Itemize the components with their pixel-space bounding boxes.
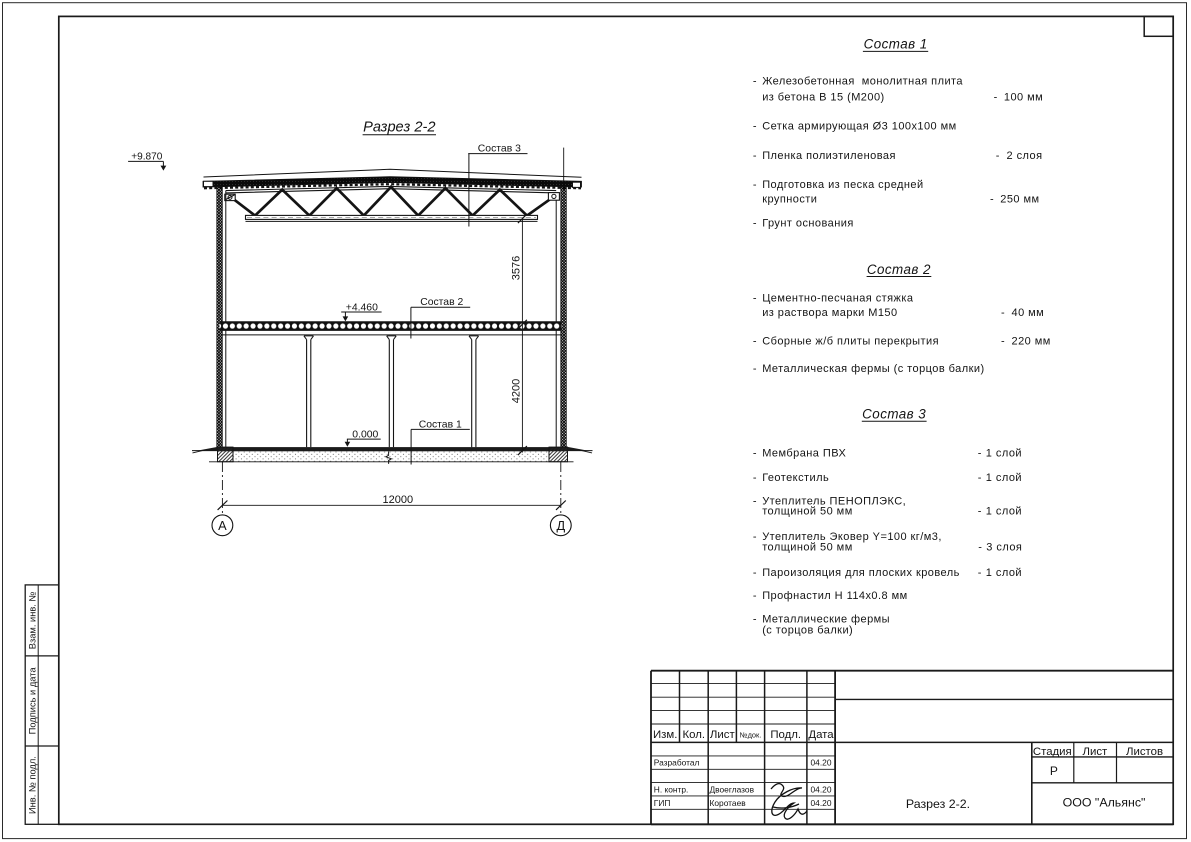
svg-text:Н. контр.: Н. контр. bbox=[654, 784, 689, 794]
svg-text:крупности: крупности bbox=[762, 193, 817, 205]
svg-text:- Пароизоляция для плоских кро: - Пароизоляция для плоских кровель bbox=[753, 567, 960, 579]
svg-text:А: А bbox=[218, 518, 227, 533]
svg-text:Лист: Лист bbox=[710, 729, 736, 741]
svg-text:ГИП: ГИП bbox=[654, 798, 671, 808]
svg-text:- 100 мм: - 100 мм bbox=[994, 91, 1044, 103]
svg-text:(с торцов балки): (с торцов балки) bbox=[762, 625, 853, 637]
svg-text:Подпись и дата: Подпись и дата bbox=[27, 667, 37, 735]
svg-text:№док.: №док. bbox=[740, 731, 762, 740]
svg-text:- 40 мм: - 40 мм bbox=[1001, 307, 1044, 319]
svg-text:Разрез 2-2: Разрез 2-2 bbox=[363, 120, 435, 136]
svg-text:из бетона В 15 (М200): из бетона В 15 (М200) bbox=[762, 91, 884, 103]
svg-text:Взам. инв. №: Взам. инв. № bbox=[27, 592, 37, 650]
svg-text:- Геотекстиль: - Геотекстиль bbox=[753, 472, 829, 484]
svg-text:- Металлические фермы: - Металлические фермы bbox=[753, 613, 890, 625]
svg-text:+9.870: +9.870 bbox=[131, 151, 163, 162]
svg-text:- 1 слой: - 1 слой bbox=[978, 505, 1022, 517]
svg-text:- 1 слой: - 1 слой bbox=[978, 567, 1022, 579]
svg-text:- 250 мм: - 250 мм bbox=[990, 193, 1040, 205]
svg-text:Коротаев: Коротаев bbox=[710, 798, 747, 808]
svg-text:толщиной 50 мм: толщиной 50 мм bbox=[762, 541, 853, 553]
svg-text:Листов: Листов bbox=[1126, 746, 1163, 758]
svg-text:Дата: Дата bbox=[808, 729, 834, 741]
svg-text:Состав 2: Состав 2 bbox=[867, 262, 931, 277]
svg-text:Изм.: Изм. bbox=[653, 729, 677, 741]
svg-text:Р: Р bbox=[1050, 764, 1058, 778]
svg-text:Лист: Лист bbox=[1083, 746, 1109, 758]
svg-text:- Пленка полиэтиленовая: - Пленка полиэтиленовая bbox=[753, 150, 896, 162]
svg-text:- 1 слой: - 1 слой bbox=[978, 448, 1022, 460]
svg-text:Стадия: Стадия bbox=[1033, 746, 1072, 758]
svg-text:- 2 слоя: - 2 слоя bbox=[996, 150, 1043, 162]
svg-text:- Железобетонная монолитная п: - Железобетонная монолитная плита bbox=[753, 76, 964, 88]
svg-text:Кол.: Кол. bbox=[683, 729, 706, 741]
svg-text:Состав 2: Состав 2 bbox=[420, 297, 463, 308]
svg-text:толщиной 50 мм: толщиной 50 мм bbox=[762, 505, 853, 517]
svg-text:- Сборные ж/б плиты перекрытия: - Сборные ж/б плиты перекрытия bbox=[753, 335, 939, 347]
svg-text:Двоеглазов: Двоеглазов bbox=[710, 784, 755, 794]
svg-text:из раствора марки М150: из раствора марки М150 bbox=[762, 307, 897, 319]
svg-text:04.20: 04.20 bbox=[811, 757, 832, 767]
svg-text:- Металлическая фермы (с торцо: - Металлическая фермы (с торцов балки) bbox=[753, 363, 985, 375]
svg-text:Подл.: Подл. bbox=[770, 729, 801, 741]
svg-text:- Подготовка из песка средней: - Подготовка из песка средней bbox=[753, 179, 924, 191]
svg-text:- 1 слой: - 1 слой bbox=[978, 472, 1022, 484]
svg-text:ООО "Альянс": ООО "Альянс" bbox=[1063, 796, 1146, 810]
svg-text:- Мембрана ПВХ: - Мембрана ПВХ bbox=[753, 448, 847, 460]
svg-text:3576: 3576 bbox=[511, 256, 523, 280]
svg-text:Состав 1: Состав 1 bbox=[864, 37, 928, 52]
svg-text:- Сетка армирующая Ø3 100х100: - Сетка армирующая Ø3 100х100 мм bbox=[753, 121, 957, 133]
svg-text:4200: 4200 bbox=[511, 379, 523, 403]
svg-text:- Профнастил Н 114х0.8 мм: - Профнастил Н 114х0.8 мм bbox=[753, 590, 908, 602]
svg-text:- 220 мм: - 220 мм bbox=[1001, 335, 1051, 347]
svg-text:04.20: 04.20 bbox=[811, 784, 832, 794]
svg-text:Инв. № подл.: Инв. № подл. bbox=[27, 756, 37, 814]
svg-text:- 3 слоя: - 3 слоя bbox=[978, 541, 1022, 553]
svg-text:Состав 3: Состав 3 bbox=[478, 143, 521, 154]
svg-text:Состав 3: Состав 3 bbox=[862, 407, 926, 422]
svg-text:- Грунт основания: - Грунт основания bbox=[753, 218, 854, 230]
svg-text:Разрез 2-2.: Разрез 2-2. bbox=[906, 797, 970, 811]
svg-text:- Цементно-песчаная стяжка: - Цементно-песчаная стяжка bbox=[753, 293, 914, 305]
svg-text:04.20: 04.20 bbox=[811, 798, 832, 808]
svg-text:Д: Д bbox=[556, 518, 565, 533]
svg-text:12000: 12000 bbox=[383, 494, 414, 506]
svg-text:Разработал: Разработал bbox=[654, 757, 700, 767]
